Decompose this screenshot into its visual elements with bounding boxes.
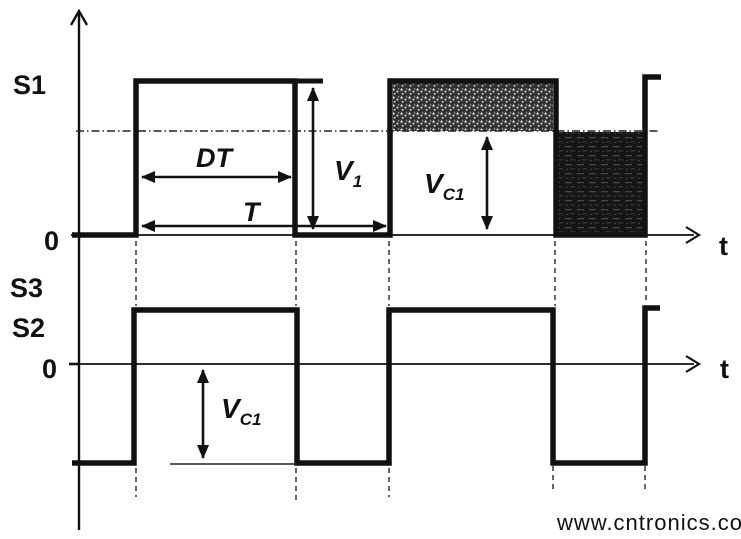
- s1-area-below-vc1: [558, 132, 645, 233]
- projection-lines-mid: [136, 241, 646, 306]
- s2-waveform: [72, 308, 660, 463]
- top-t-axis-label: t: [719, 231, 728, 261]
- watermark-text: www.cntronics.com: [556, 510, 741, 535]
- s2-signal-label: S2: [12, 313, 45, 343]
- timing-diagram-svg: S1 0 t DT T V1 VC1 S3 S2 0 t VC1 www.cnt…: [0, 0, 741, 539]
- projection-lines-bottom: [136, 466, 645, 501]
- v1-label: V1: [334, 155, 362, 191]
- s1-signal-label: S1: [13, 70, 46, 100]
- t-period-label: T: [243, 197, 262, 227]
- waveform-figure: S1 0 t DT T V1 VC1 S3 S2 0 t VC1 www.cnt…: [0, 0, 741, 539]
- dt-label: DT: [196, 143, 234, 173]
- s1-area-above-vc1: [393, 83, 553, 131]
- bottom-t-axis-label: t: [720, 354, 729, 384]
- s3-signal-label: S3: [10, 273, 43, 303]
- top-zero-label: 0: [44, 226, 59, 256]
- vc1-bottom-label: VC1: [221, 393, 261, 429]
- bottom-zero-label: 0: [42, 354, 57, 384]
- vc1-top-label: VC1: [424, 168, 464, 204]
